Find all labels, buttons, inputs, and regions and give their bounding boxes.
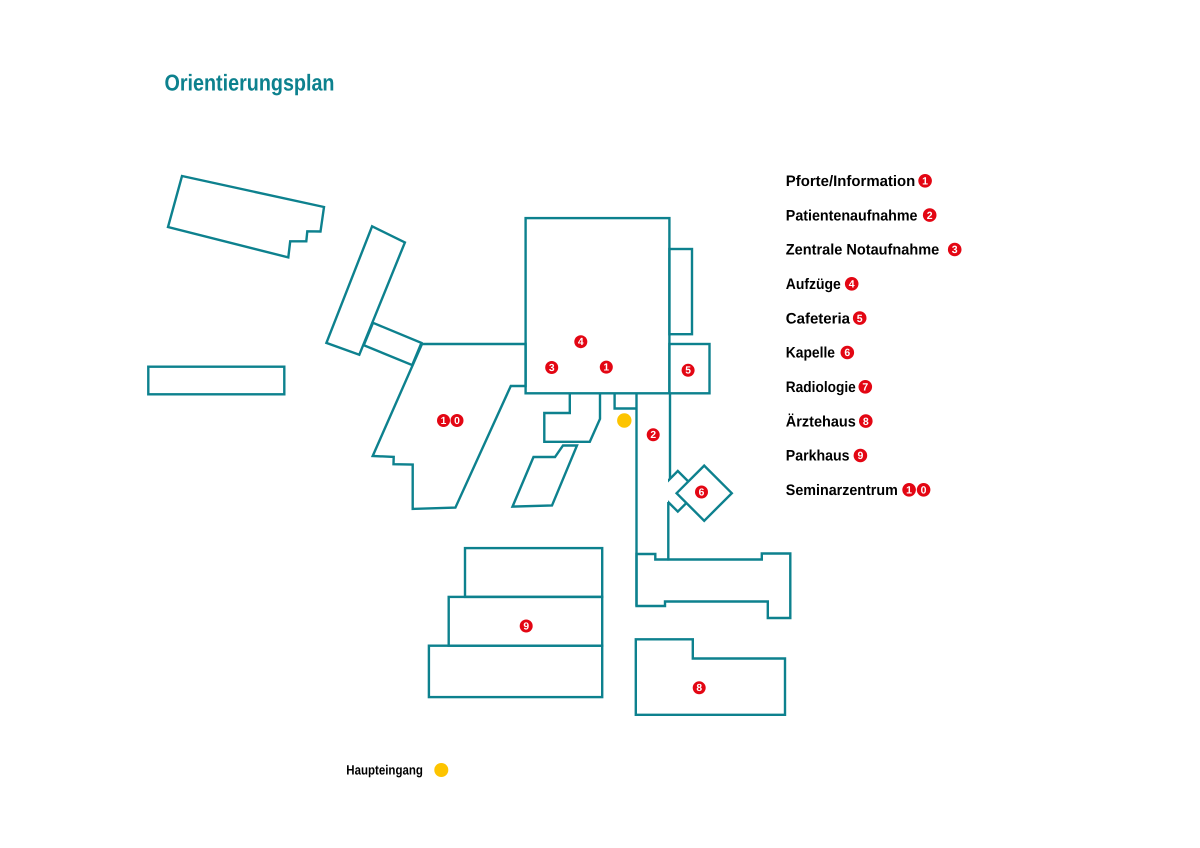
svg-text:4: 4 (849, 279, 855, 291)
svg-text:8: 8 (696, 683, 702, 694)
svg-text:Aufzüge: Aufzüge (786, 276, 841, 293)
svg-text:2: 2 (650, 430, 656, 441)
svg-text:Pforte/Information: Pforte/Information (786, 173, 916, 190)
svg-text:3: 3 (952, 244, 958, 256)
svg-text:5: 5 (857, 313, 863, 325)
svg-text:1: 1 (603, 363, 609, 374)
svg-text:9: 9 (857, 450, 863, 462)
svg-text:2: 2 (927, 210, 933, 222)
svg-text:Haupteingang: Haupteingang (346, 763, 423, 778)
svg-text:Radiologie: Radiologie (786, 379, 856, 396)
svg-text:Cafeteria: Cafeteria (786, 310, 851, 327)
svg-text:Zentrale Notaufnahme: Zentrale Notaufnahme (786, 242, 939, 259)
svg-text:4: 4 (578, 337, 584, 348)
svg-text:Patientenaufnahme: Patientenaufnahme (786, 207, 918, 224)
svg-text:6: 6 (699, 487, 705, 498)
svg-text:5: 5 (685, 366, 691, 377)
svg-text:3: 3 (549, 363, 555, 374)
svg-text:Ärztehaus: Ärztehaus (786, 413, 856, 430)
svg-text:Parkhaus: Parkhaus (786, 448, 850, 465)
svg-text:6: 6 (844, 347, 850, 359)
svg-text:1: 1 (441, 416, 447, 427)
svg-text:7: 7 (862, 382, 868, 394)
svg-text:1: 1 (922, 176, 928, 188)
svg-text:Kapelle: Kapelle (786, 345, 835, 362)
svg-text:1: 1 (906, 485, 912, 497)
svg-text:0: 0 (921, 485, 927, 497)
svg-text:0: 0 (454, 416, 460, 427)
svg-text:Orientierungsplan: Orientierungsplan (165, 70, 335, 96)
svg-text:Seminarzentrum: Seminarzentrum (786, 482, 898, 499)
svg-text:9: 9 (523, 621, 529, 632)
svg-text:8: 8 (863, 416, 869, 428)
